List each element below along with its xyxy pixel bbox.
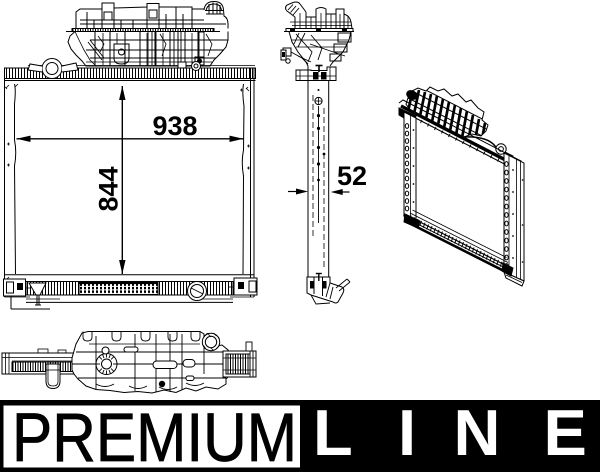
svg-text:E: E (544, 396, 587, 469)
svg-text:844: 844 (94, 166, 124, 211)
svg-text:PREMIUM: PREMIUM (12, 399, 297, 472)
svg-text:I: I (398, 396, 416, 469)
svg-text:L: L (313, 396, 353, 469)
svg-text:52: 52 (337, 161, 367, 191)
svg-text:938: 938 (152, 111, 197, 141)
svg-text:N: N (454, 396, 501, 469)
